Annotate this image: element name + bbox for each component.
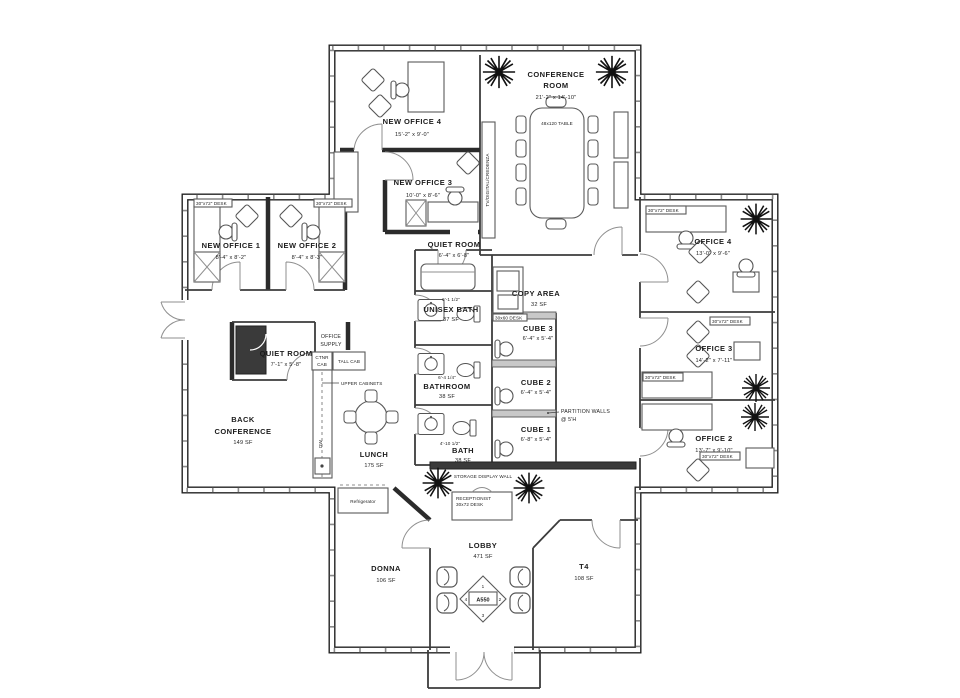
toilet [457,362,480,378]
floor-plan-drawing: A550 1 2 3 4 NEW OFFICE 4 15'-2" x 9'-0"… [0,0,960,698]
area-t4: 108 SF [574,576,594,582]
dims-quiet-room-center: 6'-4" x 6'-8" [439,253,470,259]
lunch-table [355,401,387,433]
label-cube-2: CUBE 2 [521,378,551,387]
side-chair [737,259,755,277]
guest-chair [456,151,480,175]
task-chair [391,81,409,99]
label-conference-2: ROOM [543,81,568,90]
dims-new-office-3: 10'-0" x 8'-6" [406,193,440,199]
label-tv-credenza: TV/DIGITAL/CREDENZA [485,153,490,207]
plant-icon [742,374,770,402]
marker-n3: 3 [482,613,485,618]
desk-tag: 30"x72" DESK [648,208,680,213]
label-new-office-2: NEW OFFICE 2 [278,241,337,250]
floor-plan-canvas: A550 1 2 3 4 NEW OFFICE 4 15'-2" x 9'-0"… [0,0,960,698]
marker-n4: 4 [465,597,468,602]
desk-tag: 30"x72" DESK [196,201,228,206]
desk-tag-small: 30x60 DESK [495,316,523,321]
label-cntr-cab-2: CAB [317,362,327,367]
cube-partition-1 [492,410,556,417]
lobby-chair [437,593,457,613]
lunch-chair [386,411,398,423]
label-cube-3: CUBE 3 [523,324,553,333]
area-copy-area: 32 SF [531,302,547,308]
cube-chair [495,340,513,358]
guest-chair [361,68,385,92]
label-new-office-3: NEW OFFICE 3 [394,178,453,187]
dim-bathroom: 6'-4 1/4" [438,375,456,380]
plant-icon [423,468,454,499]
area-lunch: 175 SF [364,463,384,469]
label-office-3: OFFICE 3 [695,344,732,353]
label-copy-area: COPY AREA [512,289,560,298]
cube-chair [495,440,513,458]
dims-office-4: 13'-0" x 9'-6" [696,251,730,257]
guest-chair [368,94,392,118]
label-unisex-bath: UNISEX BATH [423,305,478,314]
dims-conference: 21'-2" x 14'-10" [536,95,577,101]
label-cube-1: CUBE 1 [521,425,551,434]
cube-chair [495,387,513,405]
desk-new-office-4 [408,62,444,112]
sink [418,354,444,375]
plant-icon [741,204,772,235]
guest-chair [686,320,710,344]
lobby-chair [510,593,530,613]
lobby-chair [510,567,530,587]
desk-tag: 30"x72" DESK [645,375,677,380]
label-partition-walls-2: @ 5'H [561,417,576,423]
plant-icon [483,56,515,88]
elevation-marker: A550 1 2 3 4 [460,576,506,622]
label-cntr-cab-1: CTNR [315,355,329,360]
marker-id: A550 [476,598,489,604]
area-back-conference: 149 SF [233,440,253,446]
label-bathroom: BATHROOM [423,382,470,391]
label-t4: T4 [579,562,589,571]
label-new-office-4: NEW OFFICE 4 [383,117,442,126]
lunch-chair [344,411,356,423]
area-donna: 106 SF [376,578,396,584]
desk-tag: 30"x72" DESK [316,201,348,206]
area-bath: 38 SF [455,458,471,464]
sink [418,414,444,435]
label-refrigerator: Refrigerator [350,499,376,504]
label-new-office-1: NEW OFFICE 1 [202,241,261,250]
credenza [614,112,628,158]
guest-chair [235,204,259,228]
lunch-chair [365,432,377,444]
side-table [734,342,760,360]
dims-cube-3: 6'-4" x 5'-4" [523,336,554,342]
label-office-2: OFFICE 2 [695,434,732,443]
furniture: A550 1 2 3 4 [194,62,774,622]
lobby-chair [437,567,457,587]
dims-quiet-room-left: 7'-1" x 5'-8" [271,362,302,368]
label-upper-cabinets: UPPER CABINETS [341,381,382,386]
entry-door-opening [450,643,514,656]
desk-tag: 30"x72" DESK [702,454,734,459]
area-unisex-bath: 37 SF [443,317,459,323]
lunch-chair [365,390,377,402]
dims-new-office-4: 15'-2" x 9'-0" [395,132,429,138]
label-donna: DONNA [371,564,401,573]
plant-icon [596,56,628,88]
task-chair [219,223,237,241]
label-office-supply-1: OFFICE [321,334,342,340]
plant-icon [514,473,545,504]
label-back-conference-2: CONFERENCE [214,427,271,436]
label-back-conference-1: BACK [231,415,255,424]
label-bath: BATH [452,446,474,455]
label-conference-1: CONFERENCE [527,70,584,79]
guest-chair [279,204,303,228]
label-lunch: LUNCH [360,450,389,459]
cube-partition-2 [492,360,556,367]
credenza [614,162,628,208]
dim-unisex: 6'-1 1/2" [442,297,460,302]
toilet [453,420,476,436]
area-bathroom: 38 SF [439,394,455,400]
marker-n1: 1 [482,584,485,589]
label-office-supply-2: SUPPLY [320,342,342,348]
dims-cube-2: 6'-4" x 5'-4" [521,390,552,396]
label-storage-display-wall: STORAGE DISPLAY WALL [454,474,513,479]
label-reception-2: 30x72 DESK [456,502,484,507]
dims-cube-1: 6'-8" x 5'-4" [521,437,552,443]
label-conference-table: 48x120 TABLE [541,121,573,126]
area-lobby: 471 SF [473,554,493,560]
label-quiet-room-left: QUIET ROOM [260,349,313,358]
label-partition-walls-1: PARTITION WALLS [561,409,610,415]
label-quiet-room-center: QUIET ROOM [428,240,481,249]
side-table [746,448,774,468]
guest-chair [686,280,710,304]
plant-icon [741,403,769,431]
dims-new-office-1: 8'-4" x 8'-2" [216,255,247,261]
label-office-4: OFFICE 4 [694,237,732,246]
label-lobby: LOBBY [469,541,498,550]
label-dw: DW [318,440,323,448]
task-chair [302,223,320,241]
guest-chair [686,458,710,482]
dims-new-office-2: 8'-4" x 8'-3" [292,255,323,261]
sofa [421,264,475,290]
dims-office-3: 14'-2" x 7'-11" [696,358,733,364]
task-chair [667,429,685,447]
desk-tag: 30"x72" DESK [712,319,744,324]
task-chair [677,231,695,249]
desk-office-2 [642,404,712,430]
marker-n2: 2 [499,597,502,602]
label-tall-cab: TALL CAB [338,359,360,364]
label-reception-1: RECEPTIONIST [456,496,491,501]
